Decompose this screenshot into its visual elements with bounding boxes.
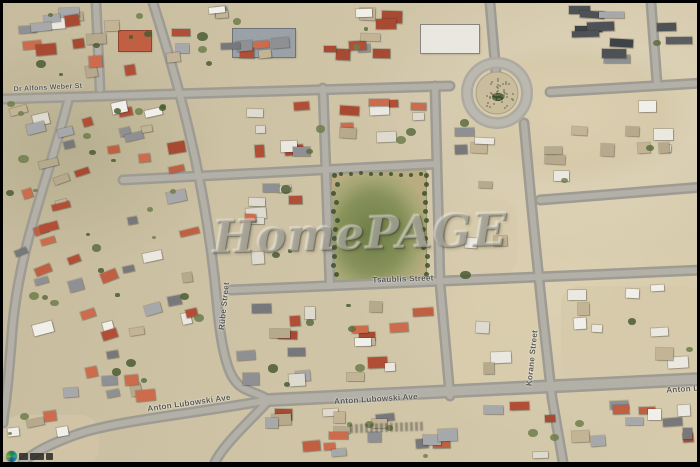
building <box>68 278 84 292</box>
building <box>678 405 691 417</box>
building <box>651 327 668 336</box>
roundabout-shrub <box>501 101 503 103</box>
building <box>128 216 139 225</box>
building <box>26 121 46 135</box>
building <box>578 303 590 315</box>
building <box>247 109 263 117</box>
building <box>249 198 265 206</box>
building <box>626 127 640 137</box>
building <box>41 236 56 246</box>
building <box>102 376 117 386</box>
building <box>221 43 240 50</box>
building <box>369 99 389 106</box>
roundabout-shrub <box>506 105 508 107</box>
vegetation <box>284 382 290 387</box>
building <box>602 48 626 57</box>
vegetation <box>561 178 568 183</box>
vegetation <box>550 434 559 441</box>
vegetation <box>268 364 279 372</box>
roundabout-shrub <box>506 93 508 95</box>
building <box>252 304 271 313</box>
roundabout-shrub <box>504 107 506 109</box>
building <box>347 373 364 381</box>
building <box>72 39 84 50</box>
building <box>329 432 348 439</box>
building <box>243 373 259 385</box>
vegetation <box>206 61 212 66</box>
building <box>302 440 319 451</box>
vegetation <box>112 368 121 375</box>
building <box>142 126 153 134</box>
building <box>544 414 555 422</box>
building <box>38 158 58 169</box>
vegetation <box>460 119 470 127</box>
building <box>142 250 162 263</box>
building <box>613 405 630 414</box>
vegetation <box>194 314 204 322</box>
roundabout-shrub <box>506 96 508 98</box>
building <box>411 103 426 110</box>
building <box>138 153 150 163</box>
building <box>373 49 390 58</box>
vegetation <box>197 32 208 41</box>
vegetation <box>364 27 368 30</box>
tree <box>331 263 336 268</box>
tree <box>399 173 403 177</box>
building <box>390 323 409 333</box>
building <box>491 352 511 363</box>
building <box>599 12 624 19</box>
roundabout-shrub <box>505 83 507 85</box>
building <box>626 289 639 299</box>
building <box>600 144 613 156</box>
vegetation <box>355 364 365 372</box>
building <box>294 101 310 111</box>
building <box>129 327 144 336</box>
roundabout-shrub <box>503 91 505 93</box>
building <box>412 113 423 121</box>
roundabout-shrub <box>496 86 498 88</box>
vegetation <box>33 189 38 193</box>
vegetation <box>316 125 326 133</box>
vegetation <box>646 145 653 151</box>
roundabout-shrub <box>499 85 501 87</box>
tree <box>425 263 430 268</box>
roundabout-shrub <box>486 105 488 107</box>
vegetation <box>180 293 189 300</box>
building <box>124 64 135 76</box>
building <box>106 350 118 358</box>
building <box>324 46 336 53</box>
vegetation <box>7 101 15 107</box>
vegetation <box>42 295 48 300</box>
vegetation <box>686 347 692 352</box>
vegetation <box>50 300 58 307</box>
building <box>105 20 119 31</box>
attribution-mark <box>19 453 28 460</box>
attribution-mark <box>30 453 44 460</box>
vegetation <box>135 108 144 115</box>
building <box>355 338 372 346</box>
vegetation <box>353 44 360 50</box>
vegetation <box>141 378 147 383</box>
building <box>663 417 682 426</box>
building <box>572 431 589 443</box>
roundabout-shrub <box>503 89 505 91</box>
tree <box>339 172 343 176</box>
vegetation <box>396 136 406 144</box>
building <box>455 145 468 155</box>
roundabout-shrub <box>490 83 492 85</box>
building <box>270 329 290 338</box>
building <box>377 131 397 142</box>
building <box>375 19 395 30</box>
building <box>591 324 601 331</box>
tree <box>349 172 353 176</box>
vegetation <box>36 60 46 68</box>
building <box>122 265 134 274</box>
building <box>572 30 599 37</box>
building <box>30 22 50 31</box>
building <box>22 188 34 200</box>
vegetation <box>89 150 96 155</box>
building <box>43 411 56 423</box>
building <box>475 138 495 145</box>
vegetation <box>126 359 136 367</box>
vegetation <box>346 304 350 307</box>
roundabout-shrub <box>497 78 499 80</box>
roundabout-shrub <box>497 80 499 82</box>
vegetation <box>98 268 103 272</box>
building <box>657 23 677 31</box>
roundabout-shrub <box>493 103 495 105</box>
building <box>639 100 656 111</box>
building <box>125 374 139 385</box>
building <box>290 316 300 327</box>
tree <box>334 272 339 277</box>
attribution-globe-icon <box>6 451 17 462</box>
building <box>106 388 119 397</box>
building <box>385 363 396 371</box>
building <box>289 373 306 386</box>
building <box>654 128 673 139</box>
building <box>355 9 371 18</box>
building <box>169 164 185 173</box>
building <box>144 302 163 316</box>
building <box>332 448 346 456</box>
building <box>256 126 265 133</box>
tree <box>424 173 429 178</box>
building <box>180 227 200 238</box>
building <box>266 417 278 427</box>
vegetation <box>59 73 63 77</box>
building <box>63 140 74 149</box>
large-building <box>421 25 479 53</box>
building <box>289 196 302 204</box>
vegetation <box>406 128 416 136</box>
building <box>591 435 605 446</box>
building <box>438 429 457 442</box>
building <box>57 126 74 138</box>
building <box>56 426 69 437</box>
roundabout-shrub <box>497 90 499 92</box>
building <box>370 302 382 312</box>
building <box>572 126 588 135</box>
roundabout-shrub <box>503 94 505 96</box>
roundabout-shrub <box>489 106 491 108</box>
building <box>368 432 381 442</box>
building <box>545 155 565 165</box>
vegetation <box>575 420 584 427</box>
building <box>666 37 692 44</box>
vegetation <box>628 318 637 325</box>
building <box>483 363 493 374</box>
building <box>510 402 529 411</box>
tree <box>389 172 393 176</box>
roundabout-shrub <box>487 102 489 104</box>
building <box>167 52 181 63</box>
roundabout-shrub <box>494 94 496 96</box>
vegetation <box>92 244 101 251</box>
aerial-map: Dr Alfons Weber St Rübe Street Tsaublis … <box>3 3 697 462</box>
vegetation <box>18 111 24 116</box>
tree <box>409 173 413 177</box>
tree <box>422 191 427 196</box>
building <box>75 167 91 177</box>
vegetation <box>20 413 29 421</box>
building <box>172 29 190 36</box>
vegetation <box>233 18 241 24</box>
watermark: HomePAGE <box>212 203 508 264</box>
screenshot-frame: Dr Alfons Weber St Rübe Street Tsaublis … <box>0 0 700 467</box>
vegetation <box>152 236 156 239</box>
building <box>388 99 398 106</box>
building <box>39 221 59 234</box>
building <box>27 418 45 429</box>
building <box>587 21 614 31</box>
building <box>455 128 474 136</box>
vegetation <box>528 429 538 437</box>
building <box>683 428 693 439</box>
tree <box>424 182 429 187</box>
building <box>610 39 633 48</box>
building <box>35 43 56 56</box>
building <box>167 141 186 154</box>
vegetation <box>29 292 39 300</box>
building <box>471 143 488 154</box>
tree <box>332 173 337 178</box>
vegetation <box>306 149 313 155</box>
building <box>53 173 69 184</box>
building <box>89 56 103 68</box>
attribution-mark <box>46 453 53 460</box>
vegetation <box>93 43 100 48</box>
building <box>259 50 272 59</box>
roundabout-shrub <box>503 96 505 98</box>
building <box>476 322 490 333</box>
tree <box>419 172 423 176</box>
vegetation <box>136 13 143 19</box>
building <box>34 276 48 286</box>
building <box>64 14 80 27</box>
attribution-logo <box>6 451 53 462</box>
building <box>15 247 28 257</box>
vegetation <box>129 35 134 39</box>
building <box>340 106 359 116</box>
building <box>80 308 96 320</box>
vegetation <box>147 207 153 212</box>
building <box>545 147 563 154</box>
roundabout-shrub <box>508 83 510 85</box>
building <box>479 181 492 188</box>
building <box>262 183 278 192</box>
tree <box>379 172 383 176</box>
building <box>183 273 193 283</box>
roundabout-shrub <box>486 95 488 97</box>
vegetation <box>86 233 90 236</box>
building <box>626 418 643 425</box>
building <box>361 34 380 41</box>
building <box>651 285 664 292</box>
roundabout-shrub <box>512 93 514 95</box>
building <box>254 145 264 158</box>
building <box>67 254 81 265</box>
roundabout-shrub <box>500 93 502 95</box>
building <box>305 307 315 319</box>
building <box>656 348 673 360</box>
building <box>574 317 587 328</box>
tree <box>334 200 339 205</box>
vegetation <box>423 454 428 458</box>
building <box>108 145 119 153</box>
vegetation <box>653 40 661 47</box>
vegetation <box>111 159 116 163</box>
building <box>237 350 256 361</box>
tree <box>331 191 336 196</box>
vegetation <box>159 105 167 111</box>
building <box>412 307 432 316</box>
roundabout-shrub <box>494 98 496 100</box>
building <box>568 290 586 300</box>
building <box>271 37 288 49</box>
vegetation <box>460 271 471 280</box>
tree <box>359 171 363 175</box>
vegetation <box>198 46 207 53</box>
building <box>334 412 345 424</box>
building <box>659 143 670 153</box>
building <box>34 263 51 276</box>
building <box>340 127 357 138</box>
vegetation <box>83 133 90 139</box>
roundabout-shrub <box>499 98 501 100</box>
building <box>533 452 548 459</box>
tree <box>335 182 340 187</box>
building <box>648 409 661 420</box>
building <box>85 366 98 378</box>
vegetation <box>8 432 12 435</box>
vegetation <box>18 155 29 164</box>
building <box>136 389 156 401</box>
vegetation <box>6 190 14 196</box>
building <box>336 48 351 60</box>
building <box>288 348 305 356</box>
vegetation <box>281 185 291 193</box>
vegetation <box>306 319 314 326</box>
building <box>82 117 93 127</box>
vegetation <box>144 31 152 37</box>
building <box>32 321 54 336</box>
building <box>484 406 503 414</box>
tree <box>369 172 373 176</box>
vegetation <box>115 293 119 296</box>
roundabout-shrub <box>512 99 514 101</box>
building <box>63 387 78 397</box>
